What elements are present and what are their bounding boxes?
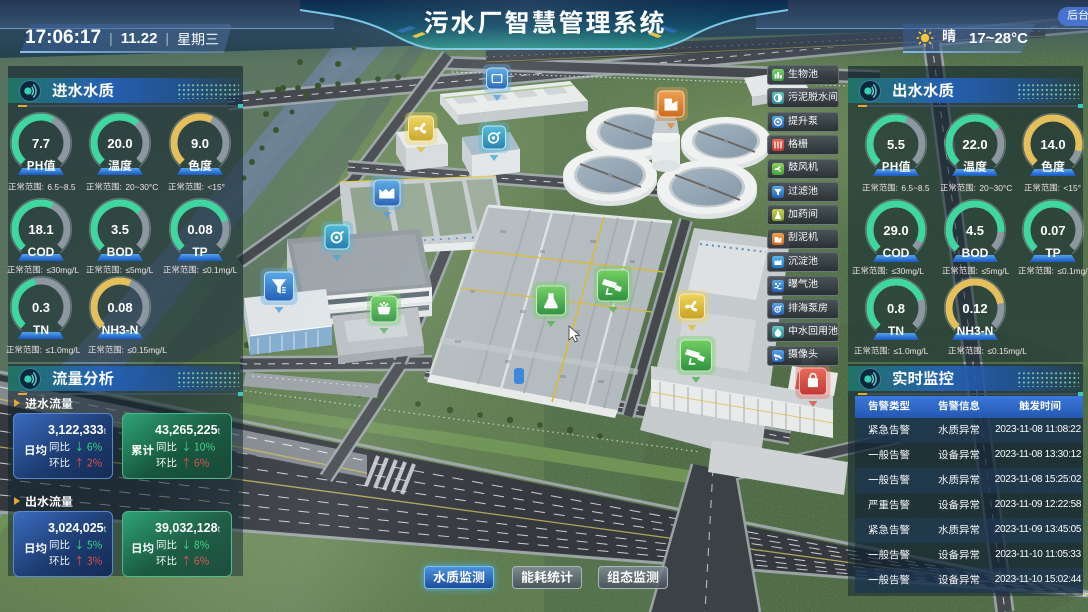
svg-text:0.07: 0.07: [1040, 223, 1065, 238]
svg-text:5.5: 5.5: [887, 137, 905, 152]
svg-text:22.0: 22.0: [962, 137, 987, 152]
svg-text:14.0: 14.0: [1040, 137, 1065, 152]
svg-text:0.08: 0.08: [107, 300, 132, 315]
svg-text:4.5: 4.5: [966, 223, 984, 238]
svg-text:7.7: 7.7: [32, 136, 50, 151]
svg-text:0.3: 0.3: [32, 300, 50, 315]
svg-text:9.0: 9.0: [191, 136, 209, 151]
svg-text:0.08: 0.08: [187, 222, 212, 237]
svg-text:20.0: 20.0: [107, 136, 132, 151]
svg-text:29.0: 29.0: [883, 223, 908, 238]
svg-text:0.12: 0.12: [962, 301, 987, 316]
svg-text:3.5: 3.5: [111, 222, 129, 237]
svg-text:0.8: 0.8: [887, 301, 905, 316]
svg-text:18.1: 18.1: [28, 222, 53, 237]
